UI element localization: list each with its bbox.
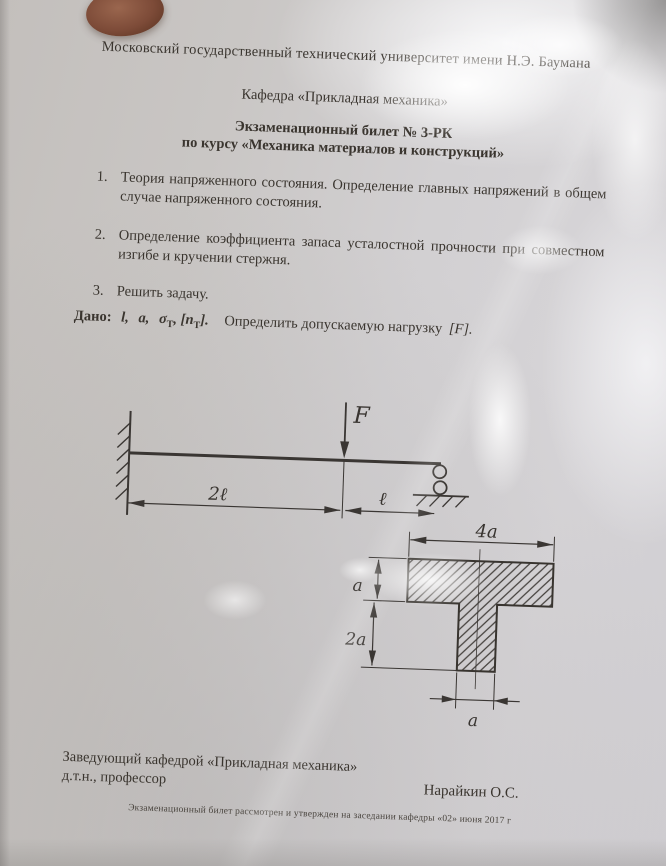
- force-label: F: [352, 403, 371, 430]
- dimension-4a-label: 4a: [474, 521, 498, 543]
- question-1: 1. Теория напряженного состояния. Опреде…: [96, 168, 607, 224]
- dimension-2a: [361, 602, 459, 670]
- dimension-web-a: [429, 672, 520, 711]
- question-1-number: 1.: [96, 168, 108, 187]
- question-3-number: 3.: [92, 282, 104, 301]
- cross-section-diagram: 4a a 2a: [333, 514, 632, 738]
- given-symbol-sigma: σТ, [nТ].: [159, 311, 209, 329]
- question-1-text: Теория напряженного состояния. Определен…: [120, 169, 607, 211]
- dimension-flange-a-label: a: [352, 576, 363, 596]
- question-2: 2. Определение коэффициента запаса устал…: [94, 226, 605, 282]
- fixed-support-icon: [115, 411, 131, 515]
- question-2-text: Определение коэффициента запаса усталост…: [118, 227, 605, 268]
- dimension-2l: [128, 499, 340, 514]
- dimension-flange-a: [363, 557, 406, 601]
- paper-content: Московский государственный технический у…: [0, 0, 666, 866]
- dimension-2a-label: 2a: [344, 630, 367, 651]
- degree-line: д.т.н., профессор: [62, 768, 167, 789]
- university-name: Московский государственный технический у…: [13, 36, 666, 76]
- dimension-l-label: ℓ: [379, 489, 388, 510]
- n-bracket-close: ].: [200, 312, 209, 328]
- n-bracket-open: , [n: [173, 311, 194, 328]
- roller-support-icon: [413, 464, 470, 507]
- signature-name: Нарайкин О.С.: [423, 782, 519, 802]
- force-arrow-icon: [340, 402, 351, 458]
- dimension-web-a-label: a: [468, 711, 479, 731]
- department-name: Кафедра «Прикладная механика»: [12, 79, 666, 119]
- beam-line: [129, 453, 441, 464]
- given-symbol-l: l,: [121, 310, 129, 326]
- question-3-text: Решить задачу.: [117, 283, 209, 302]
- given-load-symbol: [F].: [449, 321, 473, 338]
- given-symbol-a: a,: [138, 310, 149, 326]
- dimension-2l-label: 2ℓ: [207, 484, 228, 506]
- given-label: Дано:: [74, 308, 112, 325]
- extension-line-force: [342, 460, 344, 518]
- photo-of-exam-ticket: Московский государственный технический у…: [0, 0, 666, 866]
- approval-note: Экзаменационный билет рассмотрен и утвер…: [0, 798, 653, 831]
- given-task: Определить допускаемую нагрузку: [224, 313, 442, 337]
- question-2-number: 2.: [94, 226, 106, 245]
- given-line: Дано: l, a, σТ, [nТ]. Определить допуска…: [74, 308, 473, 341]
